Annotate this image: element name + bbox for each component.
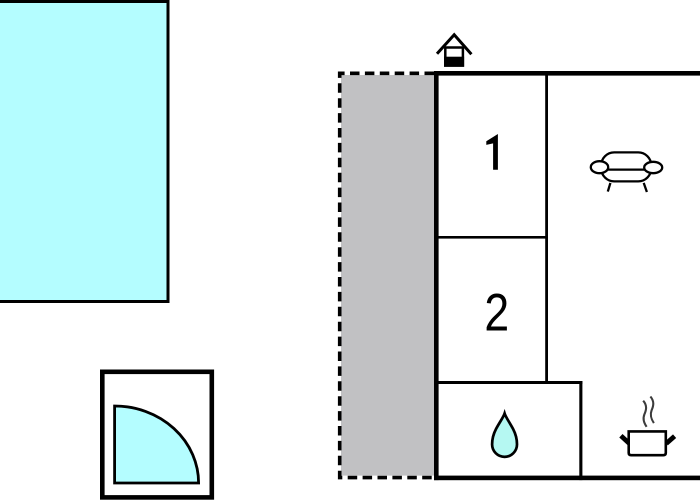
svg-text:2: 2 — [484, 284, 509, 342]
